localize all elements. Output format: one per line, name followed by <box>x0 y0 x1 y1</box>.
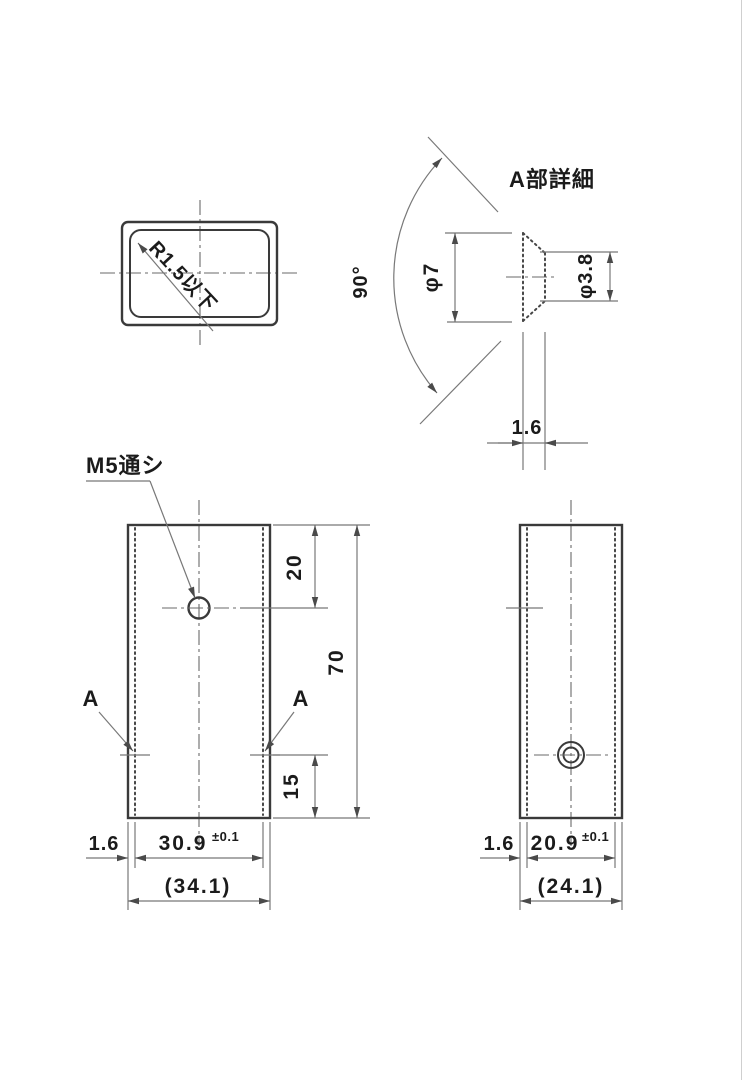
detail-marker-a-left: A <box>83 686 100 711</box>
countersink-angle-label: 90° <box>350 265 372 298</box>
dim-inner-depth-label: 20.9 <box>531 832 580 855</box>
chamfer-construction-line-bottom <box>420 341 501 424</box>
front-view: M5通シ A A 20 15 70 1.6 30.9 ±0.1 <box>83 453 370 910</box>
drawing-sheet: R1.5以下 A部詳細 90° φ7 φ3.8 1.6 <box>0 0 742 1080</box>
dim-outer-depth-ref-label: (24.1) <box>538 875 605 898</box>
wall-thickness-label: 1.6 <box>512 417 543 439</box>
dim-wall-thickness-label: 1.6 <box>89 833 120 855</box>
dim-bottom-to-hole-label: 15 <box>280 772 303 799</box>
detail-view-a: A部詳細 90° φ7 φ3.8 1.6 <box>350 137 618 470</box>
hole-diameter-label: φ3.8 <box>575 253 597 299</box>
technical-drawing-canvas: R1.5以下 A部詳細 90° φ7 φ3.8 1.6 <box>0 0 742 1080</box>
dim-overall-height-label: 70 <box>325 648 348 675</box>
dim-top-to-hole-label: 20 <box>283 553 306 580</box>
dim-outer-width-ref-label: (34.1) <box>165 875 232 898</box>
side-view: 1.6 20.9 ±0.1 (24.1) <box>480 500 622 910</box>
thread-note-label: M5通シ <box>86 453 165 478</box>
dim-inner-width-label: 30.9 <box>159 832 208 855</box>
detail-view-title: A部詳細 <box>509 167 595 192</box>
dim-wall-thickness-label: 1.6 <box>484 833 515 855</box>
outer-diameter-label: φ7 <box>420 262 443 293</box>
cross-section-view: R1.5以下 <box>100 200 300 348</box>
corner-radius-note: R1.5以下 <box>144 236 221 316</box>
chamfer-construction-line-top <box>428 137 498 212</box>
dim-inner-depth-tolerance: ±0.1 <box>582 829 609 844</box>
dim-inner-width-tolerance: ±0.1 <box>212 829 239 844</box>
detail-marker-a-right: A <box>293 686 310 711</box>
thread-note-leader-arrow <box>150 481 195 598</box>
